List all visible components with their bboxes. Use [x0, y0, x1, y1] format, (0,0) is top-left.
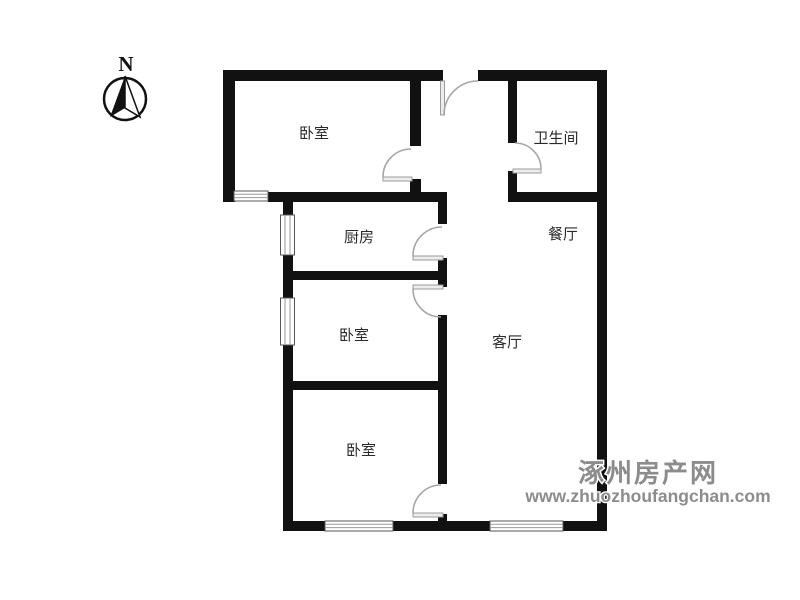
floorplan-canvas: 卧室 卫生间 厨房 餐厅 卧室 客厅 卧室 N 涿州房产网 www.zhuozh…: [0, 0, 800, 600]
north-compass: N: [104, 52, 146, 120]
window-kitchen: [281, 215, 295, 255]
bedroom-bottom-door: [413, 485, 443, 517]
window-bedroom-top: [234, 191, 268, 201]
entrance-door: [441, 81, 479, 115]
room-label-bedroom-bottom: 卧室: [346, 442, 376, 459]
window-bedroom-middle: [281, 298, 295, 345]
bathroom-door: [513, 143, 541, 173]
room-label-bedroom-top: 卧室: [299, 125, 329, 142]
watermark-site-name: 涿州房产网: [578, 458, 718, 488]
wall-bedroom-top-right: [410, 70, 421, 146]
bedroom-top-door: [383, 149, 412, 181]
wall-top-right-segment: [478, 70, 607, 81]
wall-left-lower-segment: [283, 345, 293, 531]
wall-bedroom-divider: [283, 381, 447, 390]
wall-kitchen-bottom: [283, 271, 447, 280]
wall-bottom-segment: [563, 521, 607, 531]
room-label-living: 客厅: [492, 334, 522, 351]
floorplan-page: 卧室 卫生间 厨房 餐厅 卧室 客厅 卧室 N 涿州房产网 www.zhuozh…: [0, 0, 800, 600]
wall-left-lower-segment: [283, 192, 293, 215]
room-label-bathroom: 卫生间: [533, 130, 578, 147]
wall-bedroom-top-right-stub: [410, 179, 421, 202]
wall-bathroom-bottom: [508, 192, 607, 202]
kitchen-door: [413, 227, 443, 260]
wall-bedroom-top-bottom: [223, 192, 234, 202]
room-label-kitchen: 厨房: [344, 229, 374, 246]
watermark-site-url: www.zhuozhoufangchan.com: [524, 486, 770, 506]
room-label-dining: 餐厅: [548, 226, 578, 243]
wall-central-segment: [438, 315, 447, 484]
compass-north-label: N: [118, 52, 133, 76]
wall-central-segment: [438, 192, 447, 224]
watermark: 涿州房产网 www.zhuozhoufangchan.com: [524, 458, 770, 506]
wall-left-upper: [223, 70, 235, 202]
window-bedroom-bottom: [325, 521, 393, 531]
wall-bathroom-left-stub: [508, 171, 517, 200]
window-living: [490, 521, 563, 531]
bedroom-middle-door: [413, 285, 443, 317]
wall-bathroom-left: [508, 70, 517, 143]
doors: [383, 81, 541, 517]
room-label-bedroom-middle: 卧室: [339, 327, 369, 344]
